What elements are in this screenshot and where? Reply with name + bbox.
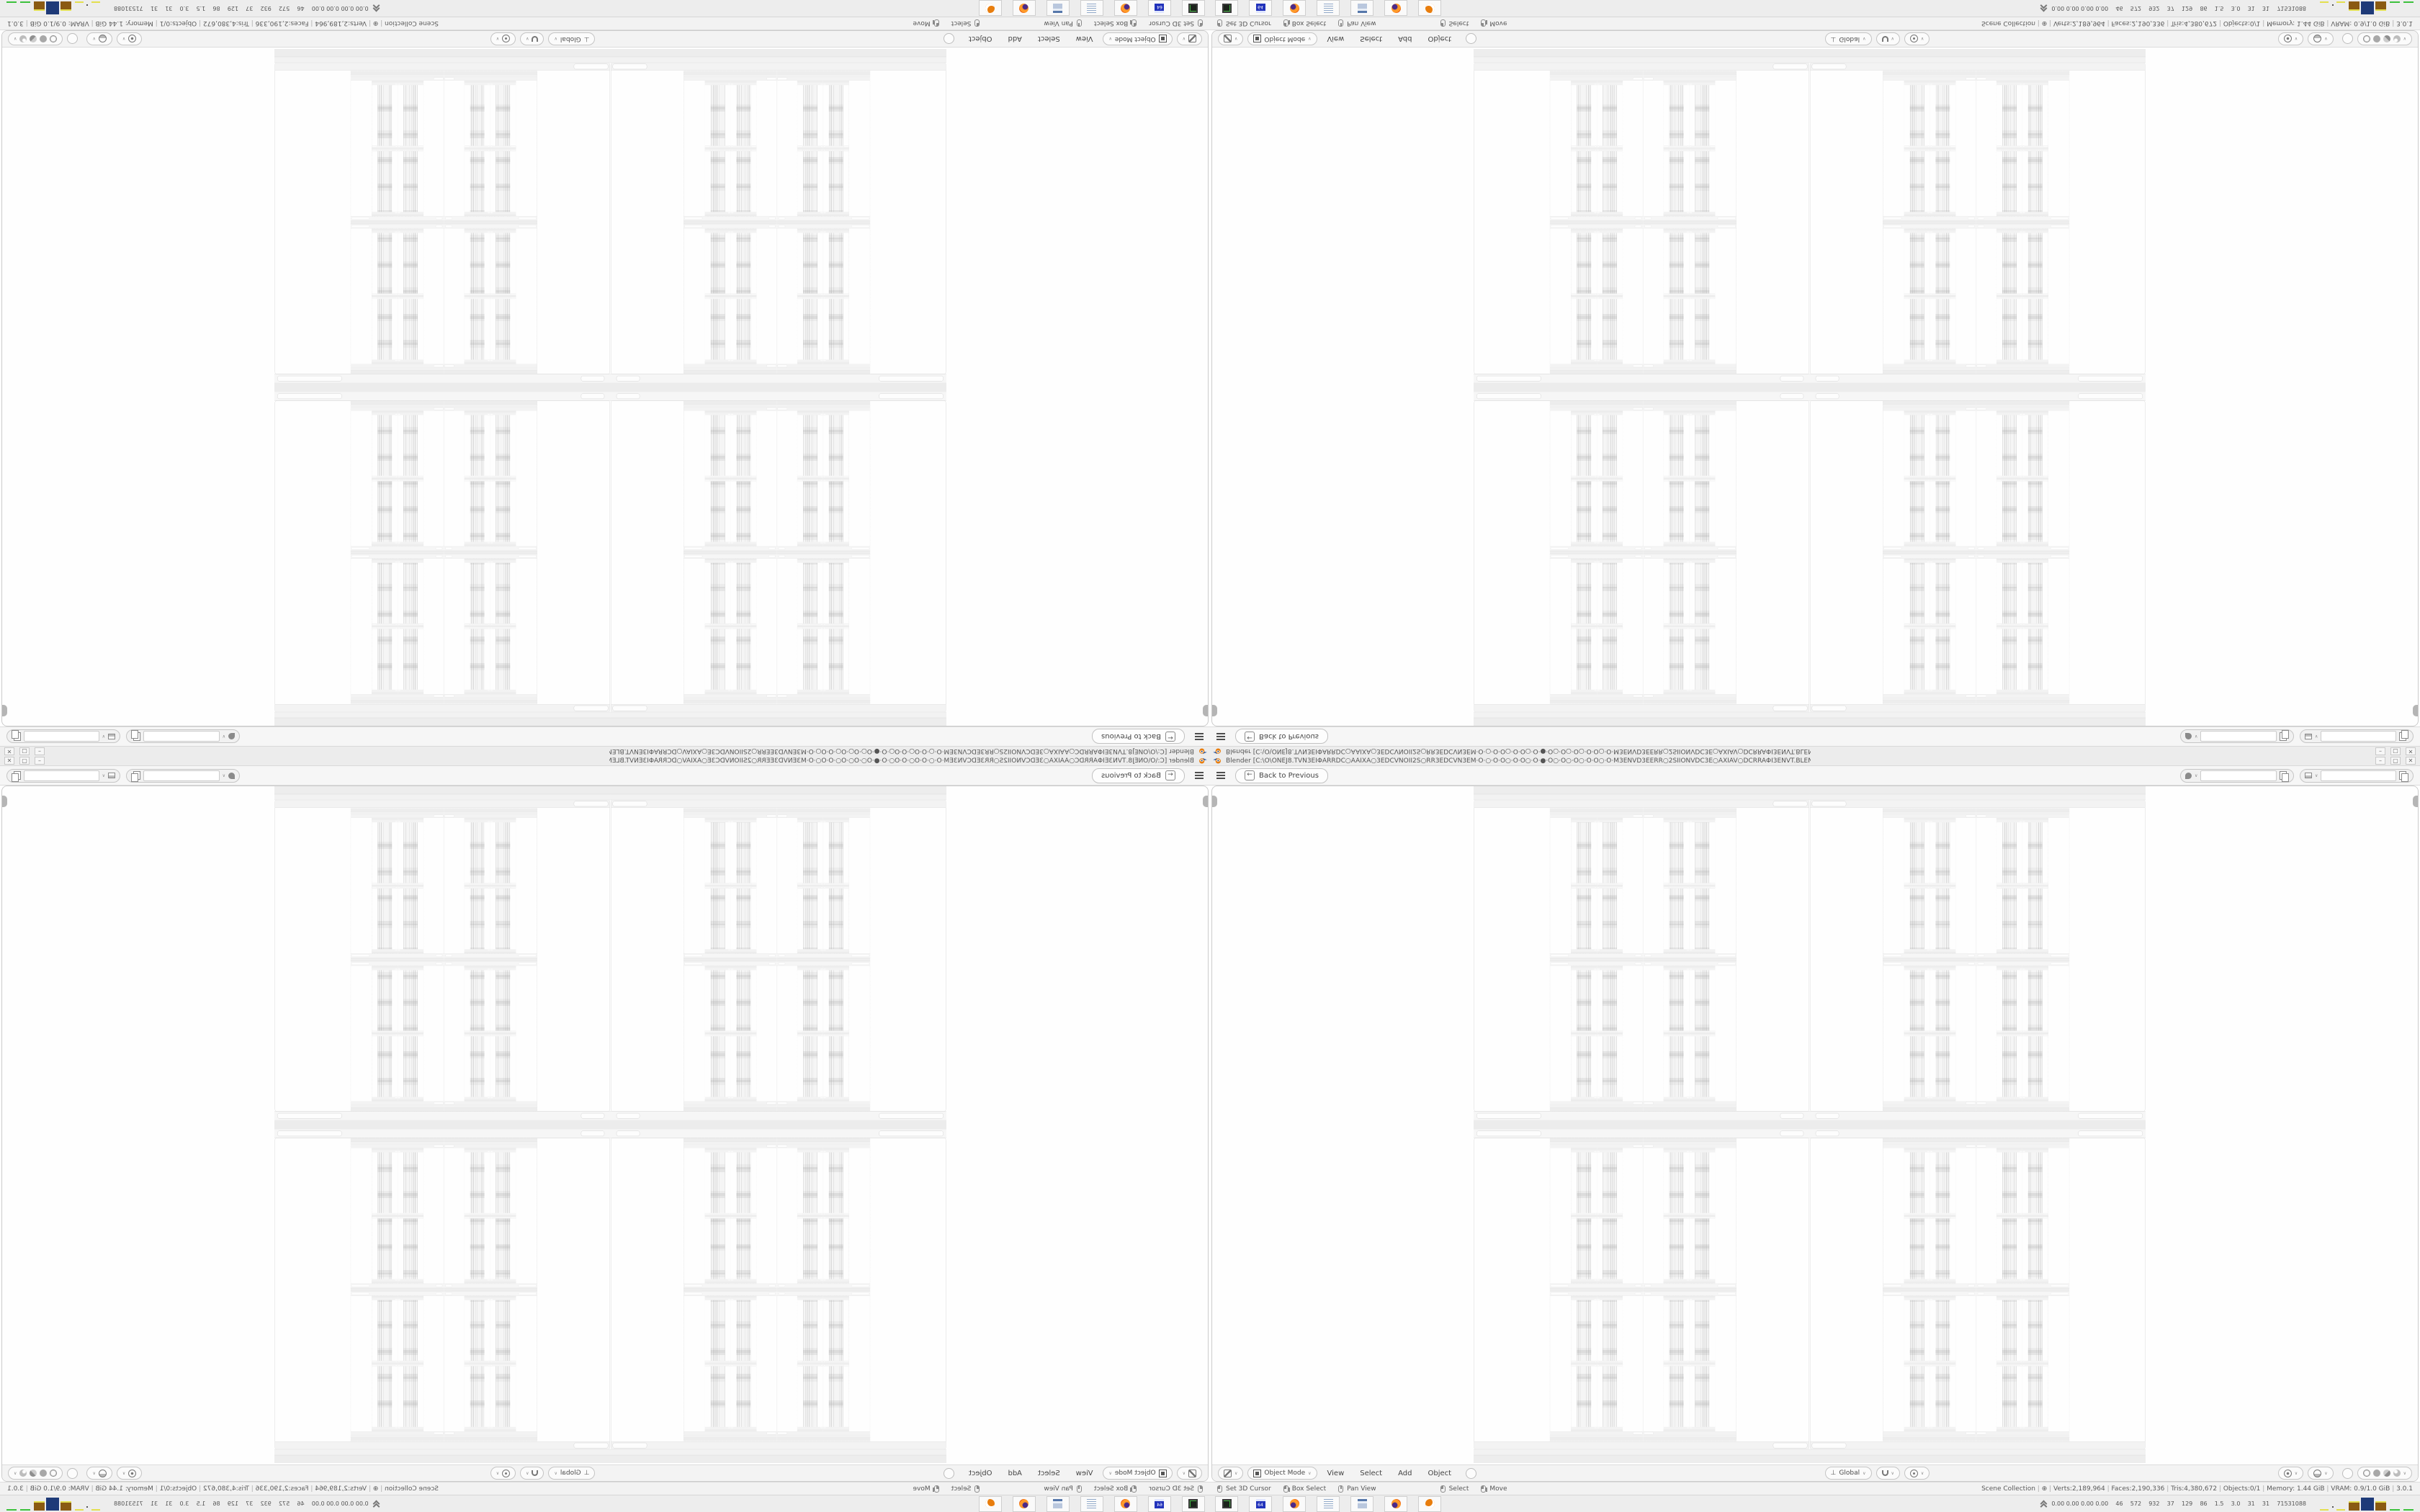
keymap-hint: Pan View [1044,1485,1081,1493]
material-shading-icon[interactable] [2383,1470,2390,1477]
menu-select: Select [1038,35,1060,43]
hint-label: Pan View [1347,20,1376,27]
recursive-screenshot-texture [274,49,946,726]
proportional-edit-icon [502,1470,510,1477]
new-layer-icon [2399,771,2406,780]
scene-selector[interactable]: ∨ [2180,769,2294,783]
orientation-icon: ⊥ [584,36,590,42]
3d-viewport: ∨ Object Mode ∨ View Select Add Object ⊥ [1,786,1209,1482]
menu-select: Select [1360,35,1382,43]
orientation-icon: ⊥ [1831,36,1837,42]
overlays-toggle: ∨ [2308,32,2333,45]
view-layer-selector: ∨ [2300,730,2414,744]
launcher-calculator-icon [1047,1,1070,17]
sidebar-handle[interactable] [2413,796,2418,807]
system-tray [2317,1496,2415,1512]
chevron-down-icon: ∨ [102,734,105,739]
viewport-header: ∨ Object Mode ∨ View Select Add Object ⊥ [2,31,1208,48]
keymap-hint: Select [1440,20,1469,27]
chevron-down-icon: ∨ [2315,734,2318,739]
rendered-shading-icon [19,1470,27,1477]
mouse-drag-icon [1131,20,1137,27]
scene-icon [2185,773,2192,779]
hint-label: Pan View [1044,20,1072,27]
faces-count: Faces:2,190,336 [256,1485,315,1493]
hint-label: Box Select [1292,20,1326,27]
keymap-hint: Pan View [1338,20,1376,27]
chevron-down-icon: ∨ [2403,37,2406,42]
view-layer-name-field [2321,732,2396,742]
launcher-floppy64-icon [1148,1,1171,17]
mouse-drag-icon [1481,1485,1486,1493]
scene-selector: ∨ [2180,730,2294,744]
chevron-down-icon: ∨ [1183,37,1186,42]
vram-usage: VRAM: 0.9/1.0 GiB [30,20,96,27]
transform-orientation-dropdown: ⊥ Global ∨ [549,1467,596,1480]
tray-green-bar [2403,2,2414,4]
rendered-shading-icon[interactable] [2393,1470,2401,1477]
chevron-down-icon: ∨ [1863,37,1865,42]
chevron-down-icon: ∨ [2324,1471,2327,1476]
launcher-terminal-icon [1182,1,1205,17]
chevron-down-icon: ∨ [1863,1471,1865,1476]
scene-name-field [143,732,220,742]
chevron-down-icon: ∨ [2403,1471,2406,1476]
scene-name-field [143,770,220,781]
solid-shading-icon [40,1470,47,1477]
menu-view[interactable]: View [1327,1470,1345,1477]
orientation-glyph: ⊕ [2035,20,2047,27]
restore-button: ▢ [19,747,30,755]
close-button[interactable]: ✕ [2406,757,2416,765]
overlay-icon [99,1470,107,1477]
window-title: Blender [C:\O\ONEJ8.TVN3EIΦARRDC○AAIXA○3… [1226,747,1811,756]
overlays-toggle[interactable]: ∨ [2308,1467,2333,1480]
close-button: ✕ [2406,747,2416,755]
gizmo-icon [2284,35,2292,43]
mode-label: Object Mode [1115,1470,1156,1477]
mouse-left-icon [974,1485,980,1493]
object-mode-icon [1159,1470,1167,1477]
system-tray [5,1496,103,1512]
toolbar-handle[interactable] [1212,796,1217,807]
launcher-firefox2-icon[interactable] [1384,1496,1407,1512]
proportional-edit-icon [502,35,510,43]
os-taskbar: 0.00 0.00 0.00 0.00 46 572 932 37 129 86… [0,0,1210,17]
close-button: ✕ [4,757,14,765]
tray-brown-meter [34,1501,45,1511]
object-mode-icon [1253,35,1261,43]
transform-orientation-dropdown[interactable]: ⊥ Global ∨ [1825,1467,1872,1480]
minimize-button: – [35,757,45,765]
hint-label: Move [913,1485,931,1493]
hint-label: Box Select [1094,20,1128,27]
launcher-blender-icon[interactable] [1418,1496,1441,1512]
launcher-calculator-icon [1350,1,1373,17]
close-button: ✕ [4,747,14,755]
gizmos-toggle: ∨ [2278,32,2303,45]
magnet-icon [532,36,539,42]
object-mode-icon [1253,1470,1261,1477]
tray-green-bar [6,2,17,4]
system-tray [5,1,103,17]
pivot-point-button[interactable] [1466,1468,1476,1479]
material-shading-icon [30,1470,37,1477]
launcher-calculator-icon[interactable] [1350,1496,1373,1512]
keymap-hint: Select [951,20,980,27]
solid-shading-icon[interactable] [2373,1470,2380,1477]
gizmos-toggle[interactable]: ∨ [2278,1467,2303,1480]
scene-collection-label: Scene Collection [385,1485,439,1493]
menu-view: View [1327,35,1345,43]
tray-brown-meter [60,1501,71,1511]
verts-count: Verts:2,189,964 [2047,1485,2105,1493]
chevron-down-icon: ∨ [1108,37,1111,42]
back-to-previous-button: ← Back to Previous [1092,768,1185,783]
blender-window: Blender [C:\O\ONEJ8.TVN3EIΦARRDC○AAIXA○3… [0,0,1210,756]
chevron-down-icon: ∨ [1308,1471,1311,1476]
objects-count: Objects:0/1 [2217,20,2260,27]
3d-viewport: ∨ Object Mode ∨ View Select Add Object ⊥ [1211,786,2419,1482]
launcher-firefox-icon [1114,1496,1137,1512]
scene-icon [228,773,235,779]
memory-usage: Memory: 1.44 GiB [2260,1485,2324,1493]
scene-stats: Scene Collection⊕Verts:2,189,964Faces:2,… [7,1485,439,1493]
keymap-hint: Pan View [1044,20,1081,27]
blender-window: Blender [C:\O\ONEJ8.TVN3EIΦARRDC○AAIXA○3… [1210,756,2420,1512]
window-titlebar: Blender [C:\O\ONEJ8.TVN3EIΦARRDC○AAIXA○3… [1210,756,2420,766]
wireframe-shading-icon [50,35,57,42]
chevron-down-icon: ∨ [2195,773,2197,778]
mouse-drag-icon [1283,20,1289,27]
launcher-notepad-icon [1080,1496,1103,1512]
blender-logo-icon [1213,748,1222,755]
mode-dropdown: Object Mode ∨ [1103,1467,1172,1480]
gizmo-icon [128,1470,136,1477]
tray-yellow-bar [91,2,100,4]
editor-menus-icon [1195,733,1204,740]
chevron-down-icon: ∨ [496,1471,499,1476]
tray-blue-meter [46,1498,59,1511]
mouse-left-icon [974,20,980,27]
launcher-floppy64-icon [1148,1496,1171,1512]
os-taskbar: 0.00 0.00 0.00 0.00 46 572 932 37 129 86… [1210,1495,2420,1512]
vram-usage: VRAM: 0.9/1.0 GiB [2325,20,2390,27]
mouse-middle-icon [1077,20,1082,27]
chevron-down-icon: ∨ [2195,734,2197,739]
version-label: 3.0.1 [7,20,30,27]
rendered-shading-icon [2393,35,2401,42]
chevron-down-icon: ∨ [1108,1471,1111,1476]
scene-collection-label: Scene Collection [385,20,439,27]
launcher-notepad-icon [1080,1,1103,17]
gizmos-toggle: ∨ [117,1467,142,1480]
window-controls: – ▢ ✕ [2375,747,2417,755]
chevron-down-icon: ∨ [223,734,225,739]
toolbar-handle [1203,796,1208,807]
keymap-hint: Select [951,1485,980,1493]
menu-select: Select [1038,1470,1060,1477]
wireframe-shading-icon [50,1470,57,1477]
chevron-down-icon: ∨ [2295,1471,2298,1476]
vram-usage: VRAM: 0.9/1.0 GiB [2325,1485,2390,1493]
editor-menus-icon [1216,733,1225,740]
blender-logo-icon [1198,748,1207,755]
overlay-icon [2313,1470,2321,1477]
chevron-down-icon: ∨ [1234,1471,1237,1476]
chevron-down-icon: ∨ [1921,1471,1924,1476]
tris-count: Tris:4,380,672 [203,20,256,27]
back-to-previous-label: Back to Previous [1101,772,1161,780]
mouse-drag-icon [1131,1485,1137,1493]
new-layer-icon [14,771,21,780]
scene-stats: Scene Collection⊕Verts:2,189,964Faces:2,… [1981,20,2413,27]
scene-name-field[interactable] [2200,770,2277,781]
version-label: 3.0.1 [2390,20,2413,27]
shading-mode-switch: ∨ [8,1467,63,1480]
magnet-icon [1882,1470,1888,1476]
mode-dropdown: Object Mode ∨ [1103,32,1172,45]
tris-count: Tris:4,380,672 [2164,1485,2217,1493]
launcher-firefox2-icon [1013,1,1036,17]
memory-usage: Memory: 1.44 GiB [95,20,159,27]
wireframe-shading-icon [2363,35,2370,42]
proportional-edit-button[interactable]: ∨ [1904,1467,1930,1480]
rendered-shading-icon [19,35,27,42]
snapping-button[interactable]: ∨ [1876,1467,1900,1480]
restore-button[interactable]: ▢ [2390,757,2401,765]
gizmo-icon [2284,1470,2292,1477]
orientation-icon: ⊥ [1831,1470,1837,1477]
tray-brown-meter [2375,2,2386,12]
menu-add[interactable]: Add [1398,1470,1412,1477]
tray-green-bar [2390,2,2400,4]
status-bar: Set 3D Cursor Box Select Pan View Select… [1210,17,2420,30]
system-monitor: 0.00 0.00 0.00 0.00 46 572 932 37 129 86… [2041,5,2306,12]
editor-type-icon [1224,1470,1232,1477]
fullscreen-topbar: ← Back to Previous ∨ ∨ [1210,726,2420,746]
back-to-previous-label: Back to Previous [1259,772,1319,780]
material-shading-icon [2383,35,2390,42]
keymap-hint: Set 3D Cursor [1217,20,1271,27]
chevron-down-icon: ∨ [555,37,557,42]
tray-brown-meter [2375,1501,2386,1511]
tray-yellow-bar [2320,1509,2329,1511]
tray-blue-meter [46,2,59,15]
tray-yellow-bar [75,1509,84,1511]
tray-brown-meter [2349,2,2359,12]
keymap-hint: Box Select [1283,20,1326,27]
editor-menus-icon[interactable] [1216,772,1225,779]
scene-name-field [2200,732,2277,742]
chevron-down-icon: ∨ [1891,37,1894,42]
hint-label: Set 3D Cursor [1149,1485,1194,1493]
chevron-down-icon: ∨ [14,1471,17,1476]
vram-usage: VRAM: 0.9/1.0 GiB [30,1485,96,1493]
hint-label: Set 3D Cursor [1226,1485,1271,1493]
window-titlebar: Blender [C:\O\ONEJ8.TVN3EIΦARRDC○AAIXA○3… [0,756,1210,766]
keymap-hint: Set 3D Cursor [1149,20,1203,27]
expand-up-icon [374,1501,379,1507]
version-label: 3.0.1 [2390,1485,2413,1493]
pivot-point-button [944,1468,954,1479]
mouse-drag-icon [1481,20,1486,27]
solid-shading-icon [40,35,47,42]
snapping-button: ∨ [520,32,544,45]
mouse-drag-icon [934,20,939,27]
editor-menus-icon [1195,772,1204,779]
hint-label: Set 3D Cursor [1149,20,1194,27]
object-mode-icon [1159,35,1167,43]
scene-icon [228,734,235,740]
minimize-button[interactable]: – [2375,757,2385,765]
primary-blender-window: Blender [C:\O\ONEJ8.TVN3EIΦARRDC○AAIXA○3… [1210,756,2420,1512]
keymap-hint: Set 3D Cursor [1149,1485,1203,1493]
transform-orientation-dropdown: ⊥ Global ∨ [549,32,596,45]
xray-toggle [67,1468,78,1479]
menu-object: Object [969,35,992,43]
view-layer-name-field [24,770,99,781]
mode-label: Object Mode [1264,1470,1305,1477]
keymap-hint: Box Select [1094,20,1137,27]
status-bar: Set 3D Cursor Box Select Pan View Select… [0,1482,1210,1495]
editor-type-button[interactable]: ∨ [1218,1467,1243,1480]
hint-label: Select [951,20,972,27]
mouse-left-icon [1217,1485,1222,1493]
tray-yellow-bar [2336,1509,2345,1511]
viewport-header: ∨ Object Mode ∨ View Select Add Object ⊥ [1212,1464,2418,1481]
hint-label: Select [1449,1485,1469,1493]
orientation-icon: ⊥ [584,1470,590,1477]
view-layer-icon [108,734,115,739]
window-titlebar: Blender [C:\O\ONEJ8.TVN3EIΦARRDC○AAIXA○3… [0,746,1210,756]
viewport-header: ∨ Object Mode ∨ View Select Add Object ⊥ [1212,31,2418,48]
view-layer-icon [108,773,115,778]
back-to-previous-label: Back to Previous [1259,733,1319,741]
overlay-icon [99,35,107,43]
hint-label: Move [1489,20,1507,27]
expand-up-icon[interactable] [2041,1501,2046,1507]
window-controls: – ▢ ✕ [3,747,45,755]
proportional-edit-icon [1910,35,1918,43]
chevron-down-icon: ∨ [526,37,529,42]
editor-type-icon [1224,35,1232,43]
back-arrow-icon: ← [1245,770,1255,780]
menu-add: Add [1008,1470,1022,1477]
scene-collection-label: Scene Collection [1981,20,2035,27]
editor-type-button: ∨ [1177,1467,1202,1480]
wireframe-shading-icon[interactable] [2363,1470,2370,1477]
hint-label: Box Select [1292,1485,1326,1493]
tris-count: Tris:4,380,672 [203,1485,256,1493]
objects-count: Objects:0/1 [160,1485,203,1493]
menu-object[interactable]: Object [1428,1470,1451,1477]
sidebar-handle [2,705,7,716]
mouse-drag-icon [934,1485,939,1493]
back-arrow-icon: ← [1165,732,1175,742]
chevron-down-icon: ∨ [14,37,17,42]
mouse-left-icon [1198,1485,1203,1493]
launcher-notepad-icon[interactable] [1317,1496,1340,1512]
chevron-down-icon: ∨ [92,1471,95,1476]
chevron-down-icon: ∨ [555,1471,557,1476]
objects-count: Objects:0/1 [160,20,203,27]
orientation-label: Global [1839,1470,1860,1477]
back-to-previous-button[interactable]: ← Back to Previous [1235,768,1328,783]
keymap-hint: Select [1440,1485,1469,1493]
view-layer-selector[interactable]: ∨ [2300,769,2414,783]
3d-viewport: ∨ Object Mode ∨ View Select Add Object ⊥ [1211,30,2419,726]
blender-logo-icon [1213,757,1222,764]
sidebar-handle [2,796,7,807]
mouse-drag-icon [1283,1485,1289,1493]
back-arrow-icon: ← [1165,770,1175,780]
overlay-icon [2313,35,2321,43]
magnet-icon [532,1470,539,1476]
scene-stats: Scene Collection⊕Verts:2,189,964Faces:2,… [1981,1485,2413,1493]
material-shading-icon [30,35,37,42]
keymap-hint: Move [913,20,939,27]
launcher-blender-icon [979,1496,1002,1512]
hint-label: Select [1449,20,1469,27]
fullscreen-topbar: ← Back to Previous ∨ ∨ [0,766,1210,786]
chevron-down-icon: ∨ [122,37,125,42]
expand-up-icon [2041,6,2046,12]
fullscreen-topbar: ← Back to Previous ∨ ∨ [0,726,1210,746]
mouse-middle-icon [1338,1485,1343,1493]
launcher-firefox-icon[interactable] [1283,1496,1306,1512]
restore-button: ▢ [19,757,30,765]
faces-count: Faces:2,190,336 [2105,1485,2165,1493]
sidebar-handle [2413,705,2418,716]
expand-up-icon [374,6,379,12]
scene-collection-label: Scene Collection [1981,1485,2035,1493]
keymap-hint: Box Select [1283,1485,1326,1493]
view-layer-selector: ∨ [6,769,120,783]
tray-green-bar [2390,1509,2400,1511]
chevron-down-icon: ∨ [1891,1471,1894,1476]
launcher-floppy64-icon[interactable] [1249,1496,1272,1512]
keymap-hint: Pan View [1338,1485,1376,1493]
view-layer-name-field[interactable] [2321,770,2396,781]
shading-mode-switch: ∨ [8,32,63,45]
keymap-hint: Move [913,1485,939,1493]
xray-toggle [67,34,78,45]
menu-add: Add [1008,35,1022,43]
orientation-glyph: ⊕ [373,1485,385,1493]
hint-label: Pan View [1044,1485,1072,1493]
chevron-down-icon: ∨ [102,773,105,778]
launcher-firefox-icon [1114,1,1137,17]
shading-mode-switch[interactable]: ∨ [2357,1467,2412,1480]
tray-brown-meter [34,2,45,12]
chevron-down-icon: ∨ [2324,37,2327,42]
hint-label: Set 3D Cursor [1226,20,1271,27]
menu-view: View [1076,1470,1093,1477]
solid-shading-icon [2373,35,2380,42]
chevron-down-icon: ∨ [92,37,95,42]
mode-dropdown: Object Mode ∨ [1247,32,1317,45]
blender-logo-icon [1198,757,1207,764]
window-controls: – ▢ ✕ [3,757,45,765]
new-scene-icon [2280,771,2287,780]
launcher-terminal-icon[interactable] [1215,1496,1238,1512]
xray-toggle[interactable] [2342,1468,2353,1479]
mouse-middle-icon [1077,1485,1082,1493]
menu-select[interactable]: Select [1360,1470,1382,1477]
menu-add: Add [1398,35,1412,43]
mode-dropdown[interactable]: Object Mode ∨ [1247,1467,1317,1480]
